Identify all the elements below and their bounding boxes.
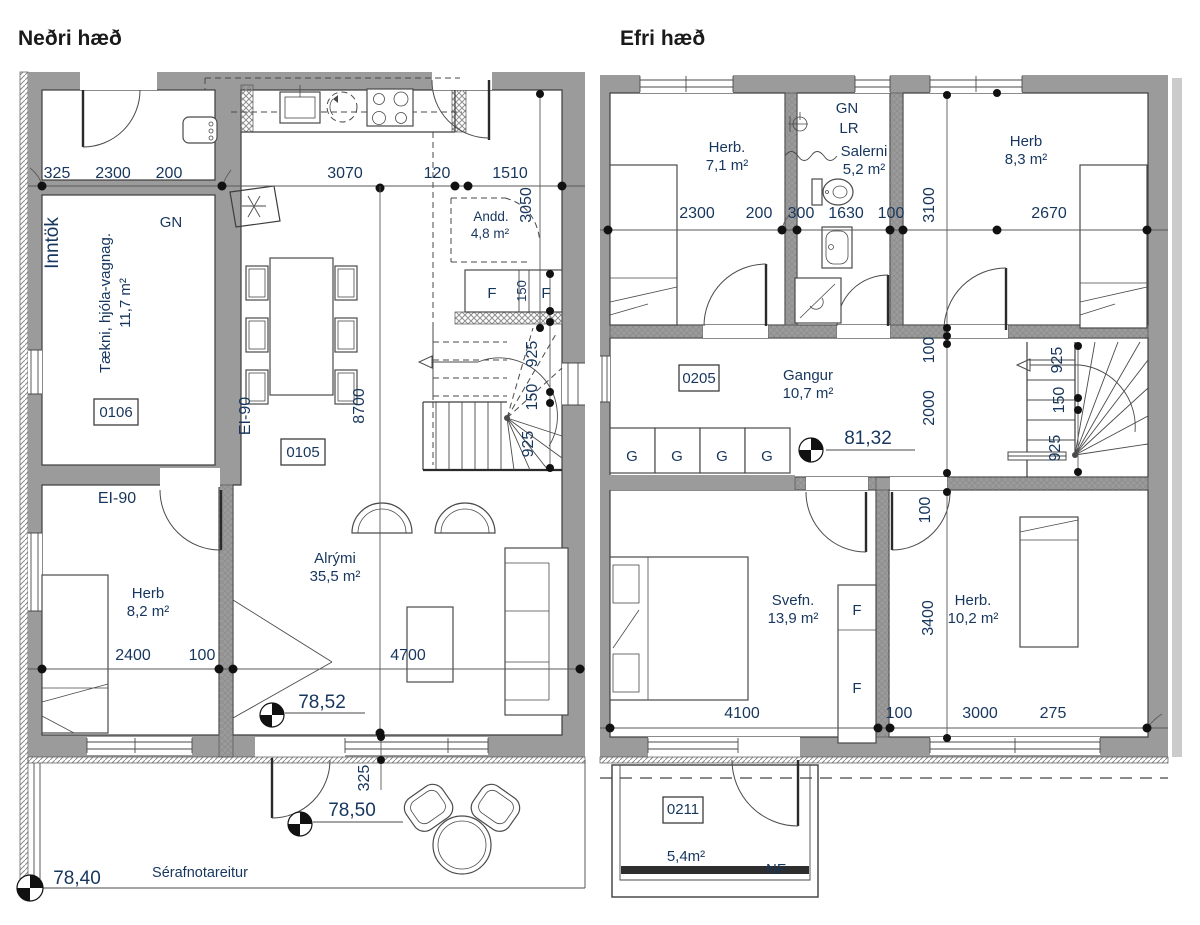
lower-floor-plan: Neðri hæð [17,27,585,901]
label-g2: G [671,448,683,465]
bed-herb102 [1020,517,1078,647]
label-taekni: Tækni, hjóla-vagnag. [97,233,114,373]
label-balcony-area: 5,4m² [667,848,705,865]
dim-4100: 4100 [724,705,760,722]
label-nf: NF [766,861,786,878]
dim-150-up: 150 [1051,387,1068,414]
label-alrymi-area: 35,5 m² [310,568,361,585]
washbasin [822,227,852,268]
dim-2300-upper: 2300 [679,205,715,222]
label-herb102: Herb. [955,592,992,609]
dim-100-hall: 100 [921,337,938,364]
dim-925-up-b: 925 [1047,435,1064,462]
party-wall-hatch [20,72,28,890]
wall-top-band-1 [610,325,703,338]
level-marker-7840 [17,875,43,901]
label-f-top: F [852,602,861,619]
dining-set [246,258,357,404]
level-8132: 81,32 [844,428,892,449]
label-g1: G [626,448,638,465]
dim-150-stair: 150 [524,384,541,411]
dim-325-top: 325 [44,165,71,182]
entry-sink [183,117,217,143]
wall-top-band-2 [768,325,837,338]
window-alrymi-east [562,363,585,405]
dim-275: 275 [1040,705,1067,722]
label-taekni-area: 11,7 m² [117,278,134,328]
dim-925-b: 925 [520,431,537,458]
stove [367,89,413,126]
label-ei90-vert: EI-90 [237,397,254,435]
label-salerni: Salerni [841,143,888,160]
floor-plan-page: Neðri hæð [0,0,1200,925]
level-7840: 78,40 [53,868,101,889]
label-gn-upper: GN [836,100,859,117]
level-7850: 78,50 [328,800,376,821]
dim-100-lower: 100 [189,647,216,664]
window-svefn-south [648,737,800,757]
label-f-right: F [541,285,550,302]
label-gangur: Gangur [783,367,833,384]
heater-closet [795,278,841,323]
dim-2300-top: 2300 [95,165,131,182]
dim-2670-upper: 2670 [1031,205,1067,222]
neighbor-wall-strip [1172,78,1182,757]
wall-svefn-herb102 [876,490,889,737]
upper-floor-plan: Efri hæð [600,27,1182,897]
wall-svefn-north-1 [795,477,806,490]
dining-table [270,258,333,395]
entry-pier-hatch [452,85,466,132]
dim-100-herb102: 100 [917,497,934,524]
label-g3: G [716,448,728,465]
dim-200-upper: 200 [746,205,773,222]
label-herb71-area: 7,1 m² [706,157,749,174]
label-herb82: Herb [132,585,165,602]
terrace-door-opening [255,737,345,757]
label-lr: LR [839,120,858,137]
dim-8700-vert: 8700 [351,388,368,424]
window-herb82 [28,533,42,611]
label-herb71: Herb. [709,139,746,156]
dim-100-upper-top: 100 [878,205,905,222]
bed-herb83 [1080,165,1147,328]
label-alrymi: Alrými [314,550,356,567]
dim-2000-hall: 2000 [921,390,938,426]
room-code-0211: 0211 [667,801,699,818]
level-7852: 78,52 [298,692,346,713]
window-herb82-south [87,737,192,755]
label-serafnotareitur: Sérafnotareitur [152,865,248,881]
dim-4700: 4700 [390,647,426,664]
label-andd-area: 4,8 m² [471,226,510,241]
upper-floor-title: Efri hæð [620,27,705,50]
dim-3100-vert: 3100 [921,187,938,223]
label-herb83: Herb [1010,133,1043,150]
dim-3000: 3000 [962,705,998,722]
window-bath-north [855,75,890,93]
window-herb102-south [930,737,1100,755]
dim-3050-vert: 3050 [518,187,535,223]
toilet [812,179,853,205]
label-g4: G [761,448,773,465]
room-code-0106: 0106 [99,404,132,421]
wall-svefn-north-2 [868,477,876,490]
label-andd: Andd. [473,209,508,224]
sofa [505,548,568,715]
dim-1510-top: 1510 [492,165,528,182]
dim-100-bottom: 100 [886,705,913,722]
wall-herb102-north [947,477,1148,490]
window-herb71-north [640,75,733,93]
outdoor-table [433,816,491,874]
wall-top-band-3 [890,325,945,338]
lower-floor-title: Neðri hæð [18,27,122,50]
dim-325-vert: 325 [356,765,373,792]
dim-150-closet: 150 [514,280,529,302]
dim-1630-upper: 1630 [828,205,864,222]
entry-door-opening [80,72,157,90]
label-f-left: F [487,285,496,302]
label-inntok: Inntök [42,217,63,269]
window-inntok [28,350,42,394]
label-svefn: Svefn. [772,592,815,609]
balcony [612,760,818,897]
window-alrymi-south [345,737,488,755]
label-gn-lower: GN [160,214,183,231]
label-gangur-area: 10,7 m² [783,385,834,402]
label-svefn-area: 13,9 m² [768,610,819,627]
dim-925-a: 925 [524,341,541,368]
kitchen-pier-hatch [241,85,253,132]
south-facade-hatch-upper [600,757,1168,763]
dim-925-up-a: 925 [1049,347,1066,374]
herb82-door-opening [160,468,220,487]
south-facade-hatch [28,757,585,763]
wall-gangur-south [600,475,795,490]
dim-3070-top: 3070 [327,165,363,182]
label-herb102-area: 10,2 m² [948,610,999,627]
dim-300-upper: 300 [788,205,815,222]
label-herb83-area: 8,3 m² [1005,151,1048,168]
label-f-bottom: F [852,680,861,697]
room-code-0205: 0205 [682,370,715,387]
stair-closet-hatch [455,312,562,324]
bed-svefn [610,557,748,700]
label-ei90-horiz: EI-90 [98,490,136,507]
window-gangur-west [600,356,610,402]
room-code-0105: 0105 [286,444,319,461]
vestibule-door-opening [432,72,492,90]
dim-200-top: 200 [156,165,183,182]
label-herb82-area: 8,2 m² [127,603,170,620]
label-salerni-area: 5,2 m² [843,161,886,178]
bed-herb82 [42,575,108,733]
dim-3400-vert: 3400 [920,600,937,636]
dim-2400: 2400 [115,647,151,664]
bed-herb71 [610,165,677,325]
dim-120-top: 120 [424,165,451,182]
floorplan-canvas: Neðri hæð [0,0,1200,925]
coffee-table [407,607,453,682]
window-herb83-north [930,75,1022,93]
